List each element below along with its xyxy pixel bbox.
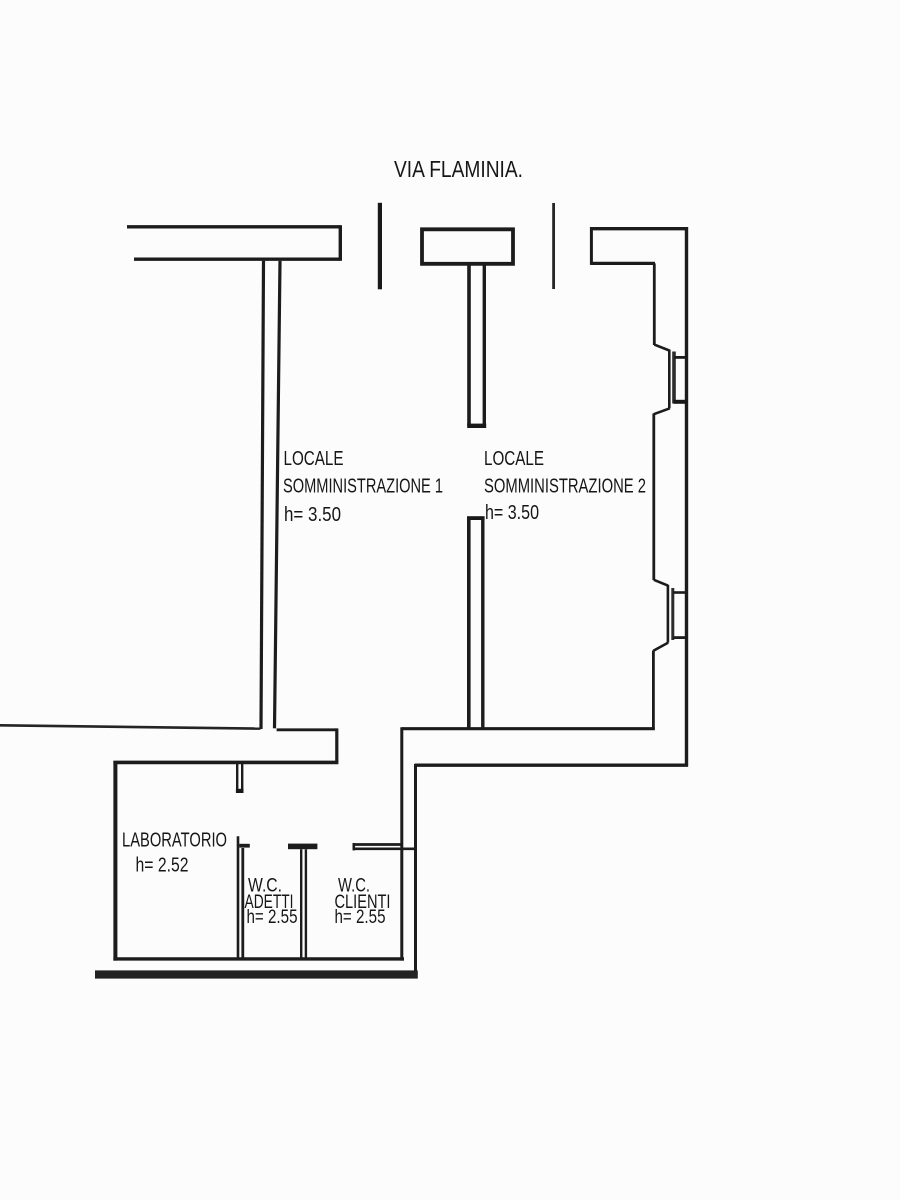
svg-text:SOMMINISTRAZIONE 2: SOMMINISTRAZIONE 2 xyxy=(484,475,646,497)
svg-text:LABORATORIO: LABORATORIO xyxy=(122,830,227,852)
svg-text:h= 3.50: h= 3.50 xyxy=(485,502,539,524)
svg-text:VIA FLAMINIA.: VIA FLAMINIA. xyxy=(394,156,523,182)
svg-text:h= 2.52: h= 2.52 xyxy=(136,855,189,877)
svg-text:h= 2.55: h= 2.55 xyxy=(335,907,386,928)
svg-text:h= 2.55: h= 2.55 xyxy=(247,907,298,928)
svg-text:SOMMINISTRAZIONE 1: SOMMINISTRAZIONE 1 xyxy=(283,475,443,497)
svg-text:LOCALE: LOCALE xyxy=(484,448,544,470)
svg-text:h= 3.50: h= 3.50 xyxy=(284,504,341,526)
svg-text:LOCALE: LOCALE xyxy=(284,448,344,470)
